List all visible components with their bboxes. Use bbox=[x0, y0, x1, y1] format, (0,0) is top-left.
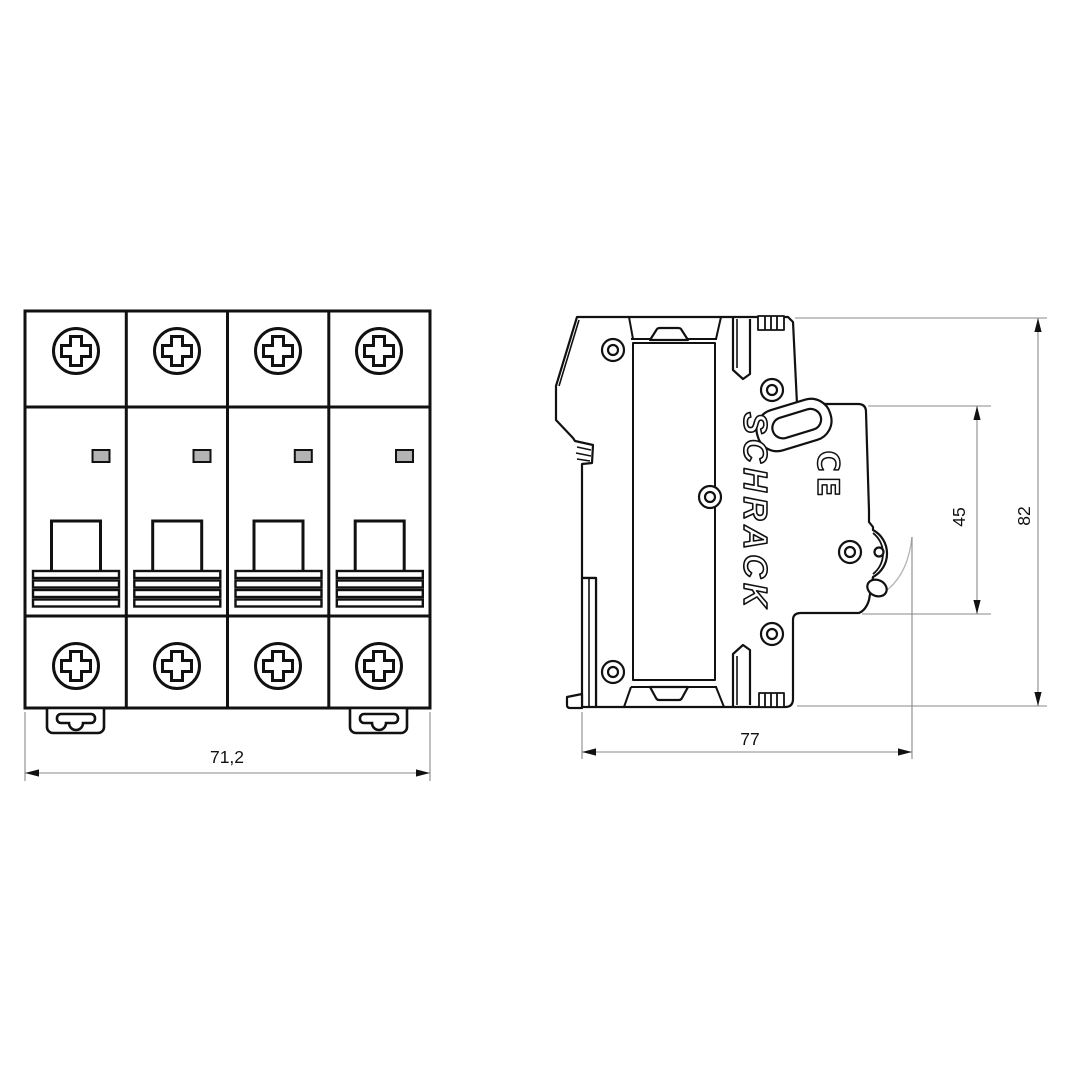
recessed-panel bbox=[624, 317, 724, 707]
mould-notch-bottom bbox=[650, 687, 688, 700]
din-hook-hatch bbox=[576, 447, 591, 461]
side-view: SCHRACK CE bbox=[556, 316, 912, 708]
indicator-window bbox=[194, 450, 211, 462]
dimension-label-front-projection: 45 bbox=[949, 507, 969, 526]
indicator-window bbox=[396, 450, 413, 462]
ce-mark-text: CE bbox=[811, 450, 845, 501]
phillips-screw-icon bbox=[256, 644, 301, 689]
phillips-screw-icon bbox=[256, 329, 301, 374]
terminal-clamp-top bbox=[758, 316, 784, 330]
phillips-screw-icon bbox=[357, 329, 402, 374]
din-rail-clips bbox=[47, 708, 407, 733]
din-rail-clip bbox=[350, 708, 407, 733]
side-housing-outline bbox=[556, 317, 887, 707]
din-rail-clip bbox=[47, 708, 104, 733]
dimension-label-height: 82 bbox=[1014, 506, 1034, 525]
terminal-clamp-bottom bbox=[759, 693, 784, 707]
brand-text: SCHRACK bbox=[737, 412, 774, 612]
phillips-screw-icon bbox=[357, 644, 402, 689]
rivet-icon bbox=[602, 661, 624, 683]
indicator-window bbox=[93, 450, 110, 462]
drawing-canvas: SCHRACK CE 71,2 77 45 82 bbox=[0, 0, 1080, 1080]
rivet-icon bbox=[761, 623, 783, 645]
dimension-label-depth: 77 bbox=[740, 729, 759, 749]
phillips-screw-icon bbox=[54, 644, 99, 689]
dimension-label-width: 71,2 bbox=[210, 747, 244, 767]
din-clip-slider bbox=[567, 578, 596, 708]
indicator-window bbox=[295, 450, 312, 462]
phillips-screw-icon bbox=[155, 644, 200, 689]
toggle-knob bbox=[52, 521, 101, 572]
rivet-icon bbox=[839, 541, 861, 563]
toggle-knob bbox=[355, 521, 404, 572]
toggle-knob bbox=[254, 521, 303, 572]
phillips-screw-icon bbox=[54, 329, 99, 374]
mould-notch-top bbox=[650, 328, 688, 340]
rivet-icon bbox=[602, 339, 624, 361]
phillips-screw-icon bbox=[155, 329, 200, 374]
rivet-icon bbox=[699, 486, 721, 508]
toggle-knob bbox=[153, 521, 202, 572]
front-view bbox=[25, 311, 430, 733]
rivet-icon bbox=[761, 379, 783, 401]
